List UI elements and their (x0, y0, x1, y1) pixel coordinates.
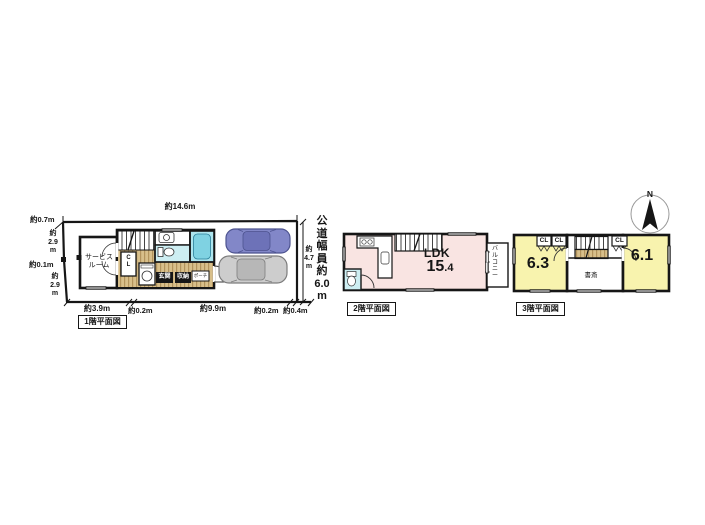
stove-icon (360, 238, 374, 246)
stairs-1f (118, 231, 155, 250)
compass-north-label: N (643, 189, 657, 199)
door-gap (116, 261, 119, 275)
study-label: 書斎 (577, 269, 605, 279)
car-icon-blue (226, 229, 290, 253)
storage-label: 収納 (175, 272, 191, 283)
washbasin-icon (159, 233, 174, 243)
floor2-title: 2階平面図 (347, 302, 396, 316)
dim-bottom-5: 約0.4m (283, 307, 309, 316)
ldk-size-frac: .4 (444, 262, 453, 274)
washing-machine-icon (139, 263, 155, 285)
toilet-icon-2f (347, 272, 356, 287)
door-gap-3f-left (566, 248, 569, 261)
kitchen-sink-icon (381, 252, 389, 264)
entrance-door-gap (213, 266, 216, 282)
dim-bottom-2: 約0.2m (128, 307, 154, 316)
dim-left-mid: 約0.1m (29, 261, 57, 270)
dim-top: 約14.6m (145, 202, 215, 211)
ldk-size-label: 15.4 (414, 258, 466, 276)
closet-label-1f: C L (123, 255, 135, 269)
dim-right: 約 4.7 m (300, 246, 318, 272)
balcony-label: バ ル コ ニ ー (489, 246, 501, 280)
dim-left-lower: 約 2.9 m (47, 273, 63, 299)
floor3-title: 3階平面図 (516, 302, 565, 316)
entrance-label: 玄関 (156, 272, 173, 283)
ldk-size-int: 15 (427, 258, 445, 275)
room-6-3-label: 6.3 (518, 255, 558, 273)
closet-label-3: CL (612, 236, 627, 246)
service-room-label: サービス ルーム (82, 254, 116, 270)
dim-bottom-3: 約9.9m (196, 304, 230, 313)
compass-icon (631, 195, 669, 233)
dim-bottom-1: 約3.9m (76, 304, 118, 313)
porch-label: ポーチ (192, 271, 209, 281)
dim-left-upper: 約 2.9 m (45, 230, 61, 256)
bathtub-icon (194, 234, 211, 259)
dim-top-left: 約0.7m (30, 216, 58, 225)
pillar-marker (77, 255, 82, 260)
boundary-point-marker (61, 257, 66, 262)
dim-bottom-4: 約0.2m (254, 307, 280, 316)
floorplan-page: 公 道 幅 員 約 6.0 m 1階平面図 2階平面図 3階平面図 約14.6m… (0, 0, 705, 525)
room-6-1-label: 6.1 (622, 247, 662, 265)
stairs-landing-3f (575, 250, 608, 259)
floor1-title: 1階平面図 (78, 315, 127, 329)
closet-label-2: CL (552, 236, 566, 246)
closet-label-1: CL (537, 236, 551, 246)
car-icon-gray (219, 256, 287, 283)
toilet-icon-1f (158, 248, 174, 257)
door-gap (116, 243, 119, 257)
